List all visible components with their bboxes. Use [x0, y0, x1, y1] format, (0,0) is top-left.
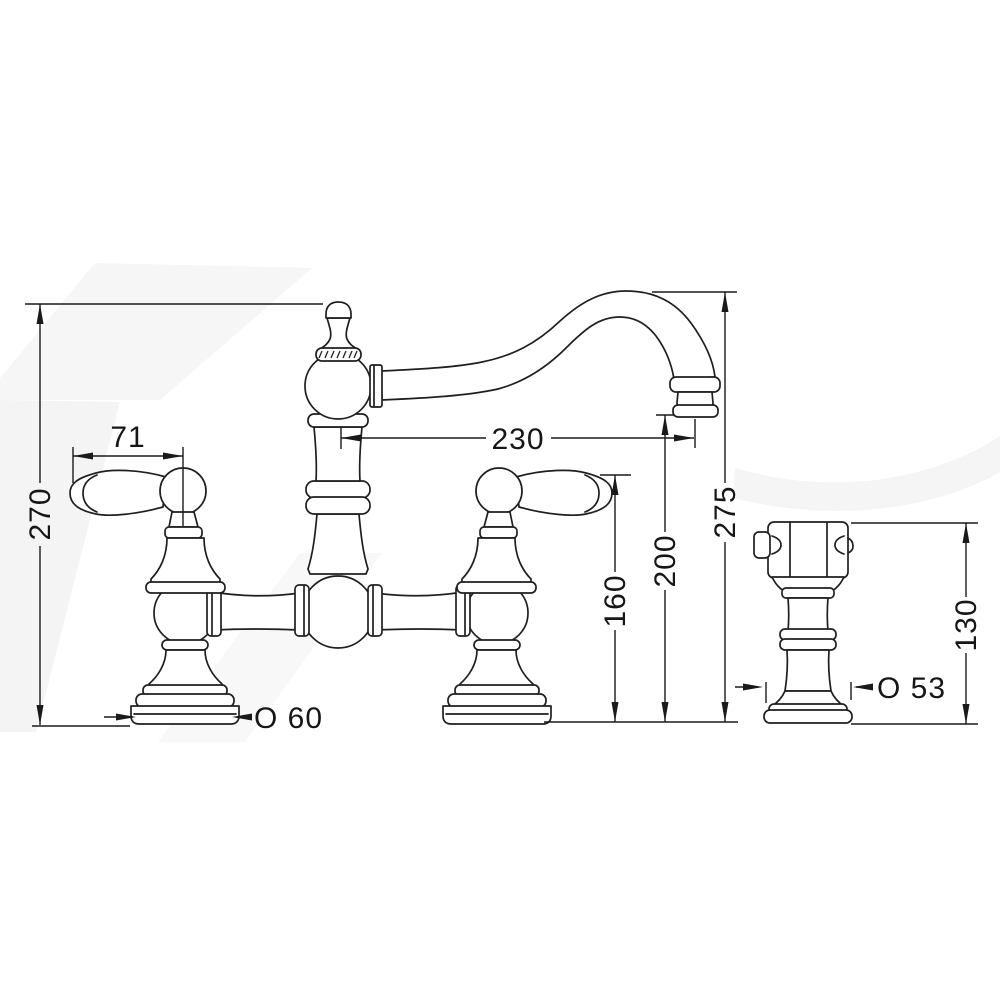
dim-handle-height: 160 — [599, 475, 632, 722]
spout-outlet — [670, 377, 720, 417]
dim-handle-height-label: 160 — [599, 574, 632, 627]
sprayer-base-slab — [764, 710, 852, 723]
outlet-bottom-rim — [673, 405, 718, 417]
column-ring-lower — [306, 497, 370, 514]
technical-drawing-page: 270 71 230 160 200 — [0, 0, 1000, 1000]
sprayer-column-upper — [788, 598, 828, 631]
finial-dome — [326, 302, 351, 318]
spout-ball — [305, 353, 371, 419]
center-column-lower — [308, 514, 368, 574]
outlet-top-rim — [670, 377, 720, 392]
sprayer-nozzle — [754, 532, 770, 558]
main-faucet — [70, 291, 720, 724]
dim-base-diameter-label: O 60 — [254, 702, 323, 735]
bridge-pipe-left — [213, 592, 300, 630]
side-sprayer — [754, 522, 853, 723]
left-handle-base — [131, 640, 239, 724]
faucet-dimension-drawing: 270 71 230 160 200 — [0, 0, 1000, 1000]
sprayer-ring-lower — [780, 639, 836, 650]
bridge-pipe-right — [375, 592, 463, 630]
dim-outlet-height-label: 200 — [649, 534, 682, 587]
sprayer-column-lower — [785, 650, 831, 691]
finial-neck — [319, 318, 358, 350]
dim-spout-height-label: 275 — [709, 485, 742, 538]
dim-sprayer-height-label: 130 — [950, 598, 983, 651]
dim-sprayer-base-diameter-label: O 53 — [877, 672, 946, 705]
sprayer-neck-band — [782, 588, 834, 598]
dim-sprayer-base-diameter: O 53 — [735, 672, 946, 705]
spout — [381, 291, 715, 400]
center-column-upper — [314, 427, 362, 481]
dim-outlet-height: 200 — [649, 415, 682, 722]
dim-handle-length-label: 71 — [110, 421, 145, 454]
center-bridge-ball — [302, 576, 374, 648]
column-ring-upper — [306, 481, 370, 498]
spout-flange — [370, 365, 382, 407]
dim-spout-reach: 230 — [341, 419, 695, 456]
dim-overall-height-label: 270 — [24, 487, 57, 540]
left-handle — [70, 468, 225, 593]
dim-spout-reach-label: 230 — [491, 423, 544, 456]
